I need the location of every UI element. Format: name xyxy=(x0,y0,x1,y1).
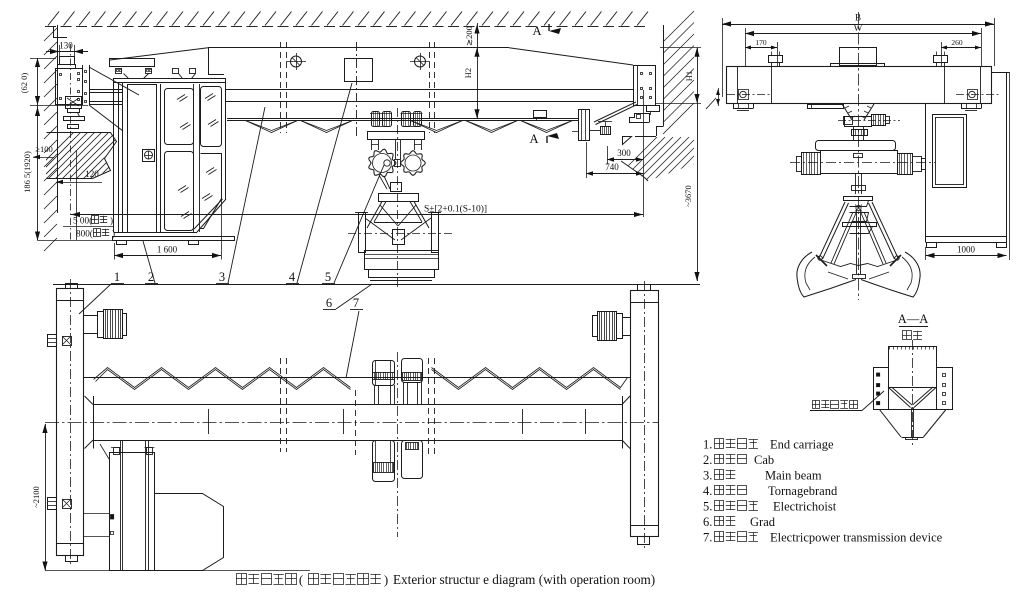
svg-text:260: 260 xyxy=(951,38,963,47)
svg-text:A: A xyxy=(529,132,538,146)
svg-text:Tornagebrand: Tornagebrand xyxy=(768,484,838,498)
svg-text:186 5(1920): 186 5(1920) xyxy=(22,151,32,193)
svg-text:740: 740 xyxy=(605,162,619,172)
svg-text:130: 130 xyxy=(59,41,73,51)
svg-text:~2100: ~2100 xyxy=(31,486,41,508)
svg-text:≥100: ≥100 xyxy=(35,144,52,154)
svg-text:3: 3 xyxy=(219,270,225,284)
svg-text:Exterior structur e diagram (w: Exterior structur e diagram (with operat… xyxy=(393,572,655,587)
svg-text:4.: 4. xyxy=(703,484,712,498)
svg-text:800(: 800( xyxy=(76,229,93,239)
svg-text:Cab: Cab xyxy=(754,453,774,467)
svg-text:3.: 3. xyxy=(703,469,712,483)
svg-text:2.: 2. xyxy=(703,453,712,467)
svg-text:): ) xyxy=(112,229,115,239)
svg-text:5 00(: 5 00( xyxy=(73,216,92,226)
svg-text:~3670: ~3670 xyxy=(683,185,693,207)
svg-text:S±[2+0.1(S-10)]: S±[2+0.1(S-10)] xyxy=(424,204,487,215)
svg-text:(62 0): (62 0) xyxy=(19,73,29,94)
svg-text:1.: 1. xyxy=(703,438,712,452)
svg-text:5: 5 xyxy=(325,270,331,284)
svg-text:≳200: ≳200 xyxy=(464,26,474,46)
svg-text:6: 6 xyxy=(326,296,332,310)
svg-text:Grad: Grad xyxy=(750,515,776,529)
svg-text:5.: 5. xyxy=(703,500,712,514)
svg-text:): ) xyxy=(384,572,388,587)
svg-text:B: B xyxy=(855,13,861,23)
svg-text:Electricpower transmission dev: Electricpower transmission device xyxy=(770,531,943,545)
svg-text:1 600: 1 600 xyxy=(157,245,178,255)
svg-text:Electrichoist: Electrichoist xyxy=(773,500,837,514)
svg-text:(: ( xyxy=(299,572,303,587)
svg-text:120: 120 xyxy=(85,169,99,179)
svg-text:4: 4 xyxy=(289,270,296,284)
svg-text:A—A: A—A xyxy=(898,312,929,326)
svg-text:): ) xyxy=(110,216,113,226)
svg-text:7.: 7. xyxy=(703,531,712,545)
svg-text:6.: 6. xyxy=(703,515,712,529)
svg-text:A: A xyxy=(532,24,541,38)
svg-text:End carriage: End carriage xyxy=(770,438,834,452)
svg-text:1: 1 xyxy=(114,270,120,284)
svg-text:300: 300 xyxy=(617,148,631,158)
svg-text:H2: H2 xyxy=(463,68,473,78)
svg-text:Main beam: Main beam xyxy=(765,469,822,483)
svg-text:1000: 1000 xyxy=(957,245,976,255)
svg-text:7: 7 xyxy=(353,296,359,310)
svg-text:170: 170 xyxy=(755,38,767,47)
svg-text:H1: H1 xyxy=(684,71,694,81)
